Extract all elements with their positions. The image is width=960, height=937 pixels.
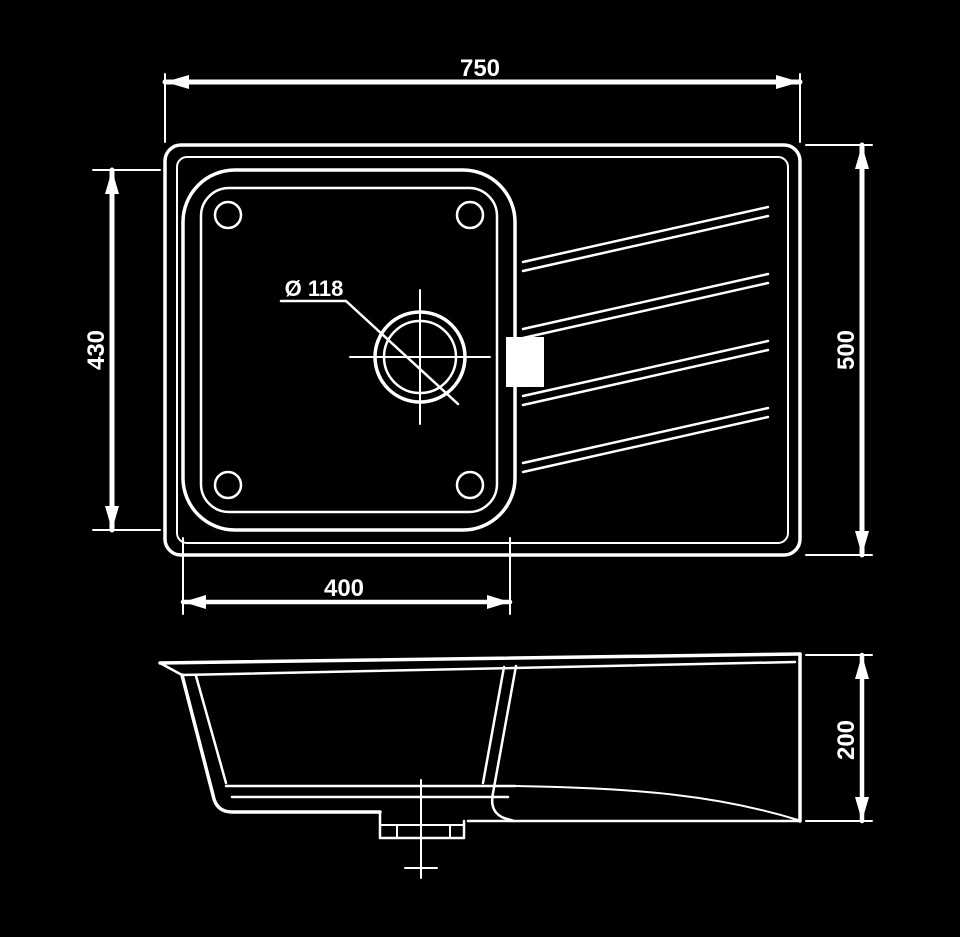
arrowhead-top: [855, 655, 869, 679]
arrowhead-left: [165, 75, 189, 89]
drainer-groove-3: [523, 341, 768, 405]
sink-technical-drawing: Ø 118: [0, 0, 960, 937]
dim-overall-depth: 500: [806, 145, 872, 555]
bowl-left-wall-inner: [196, 676, 226, 783]
groove-line: [523, 408, 768, 463]
technical-drawing-canvas: Ø 118: [0, 0, 960, 937]
drainer-detail-block: [506, 337, 544, 387]
groove-line: [523, 350, 768, 405]
dim-overall-width: 750: [165, 55, 800, 142]
bowl-depth-label: 200: [833, 720, 860, 760]
bowl-inner-edge: [201, 188, 497, 512]
arrowhead-right: [487, 595, 510, 609]
dim-bowl-depth: 200: [806, 655, 872, 821]
arrowhead-bottom: [105, 506, 119, 530]
side-view: [160, 654, 800, 878]
groove-line: [523, 283, 768, 338]
drainer-surface-line: [182, 662, 795, 675]
bowl-right-wall-inner: [483, 667, 504, 783]
top-view: Ø 118: [165, 145, 800, 555]
base-curve-line: [515, 786, 798, 820]
arrowhead-left: [183, 595, 206, 609]
drainer-groove-4: [523, 408, 768, 472]
left-rim-edge: [160, 663, 182, 675]
bowl-width-label: 400: [324, 575, 364, 602]
drain-boss: [380, 780, 464, 878]
arrowhead-bottom: [855, 797, 869, 821]
arrowhead-right: [776, 75, 800, 89]
drainer-groove-1: [523, 207, 768, 271]
bowl-corner-fillet-bottom-right: [457, 472, 483, 498]
bowl-corner-fillet-top-right: [457, 202, 483, 228]
overall-width-label: 750: [460, 55, 500, 82]
arrowhead-top: [855, 145, 869, 169]
groove-line: [523, 274, 768, 329]
drain-diameter-label: Ø 118: [285, 276, 344, 301]
sink-outline-top-view: [165, 145, 800, 555]
arrowhead-bottom: [855, 531, 869, 555]
groove-line: [523, 216, 768, 271]
dim-bowl-width: 400: [183, 538, 510, 614]
dim-bowl-length: 430: [83, 170, 160, 530]
drain-top-view: Ø 118: [281, 276, 490, 424]
bowl-corner-fillet-top-left: [215, 202, 241, 228]
bowl-corner-fillet-bottom-left: [215, 472, 241, 498]
drain-leader-line: [281, 301, 458, 404]
bowl-left-wall-outer: [182, 675, 380, 812]
bowl-length-label: 430: [83, 330, 110, 370]
drainer-groove-2: [523, 274, 768, 338]
groove-line: [523, 341, 768, 396]
drainer-grooves: [523, 207, 768, 472]
groove-line: [523, 417, 768, 472]
overall-depth-label: 500: [833, 330, 860, 370]
groove-line: [523, 207, 768, 262]
side-top-edge: [160, 654, 800, 663]
arrowhead-top: [105, 170, 119, 194]
